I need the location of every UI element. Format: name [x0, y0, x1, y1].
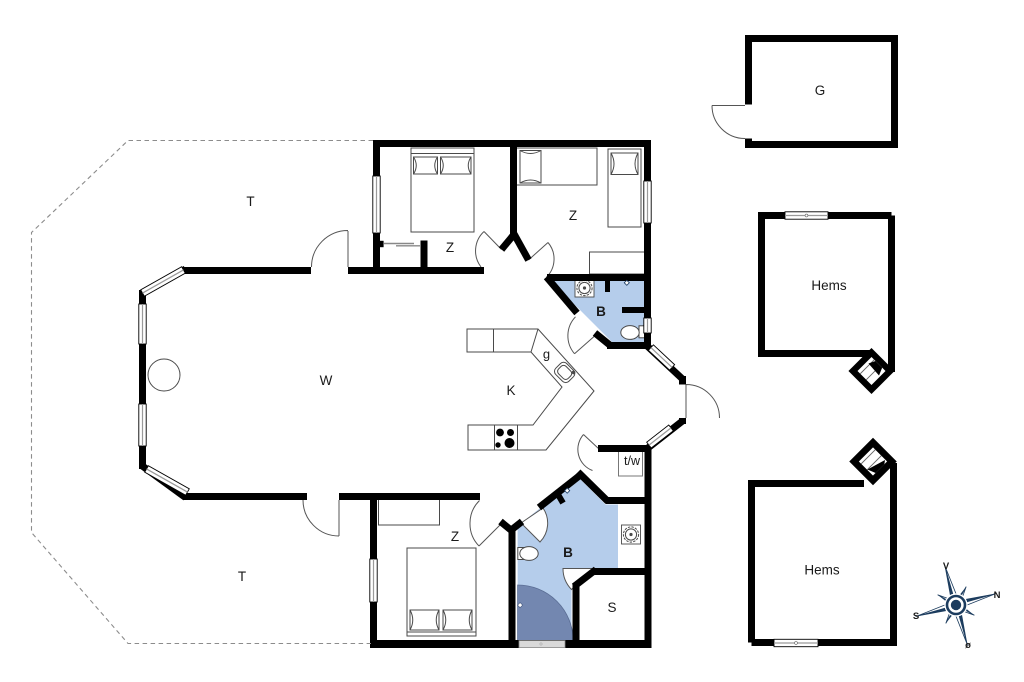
svg-text:T: T	[238, 569, 246, 584]
svg-text:S: S	[913, 611, 919, 622]
svg-text:g: g	[543, 347, 550, 362]
svg-text:t/w: t/w	[624, 454, 641, 468]
svg-text:V: V	[943, 561, 950, 572]
svg-text:S: S	[607, 600, 616, 615]
svg-text:N: N	[994, 590, 1001, 601]
svg-text:Z: Z	[451, 529, 459, 544]
svg-text:W: W	[320, 373, 333, 388]
svg-text:B: B	[563, 545, 573, 560]
svg-text:Hems: Hems	[804, 563, 840, 578]
svg-text:ø: ø	[965, 640, 971, 651]
svg-text:B: B	[596, 304, 606, 319]
svg-text:Hems: Hems	[811, 278, 847, 293]
svg-text:Z: Z	[446, 240, 454, 255]
svg-text:K: K	[506, 383, 515, 398]
svg-text:G: G	[815, 83, 826, 98]
svg-text:T: T	[246, 194, 254, 209]
svg-text:Z: Z	[569, 208, 577, 223]
